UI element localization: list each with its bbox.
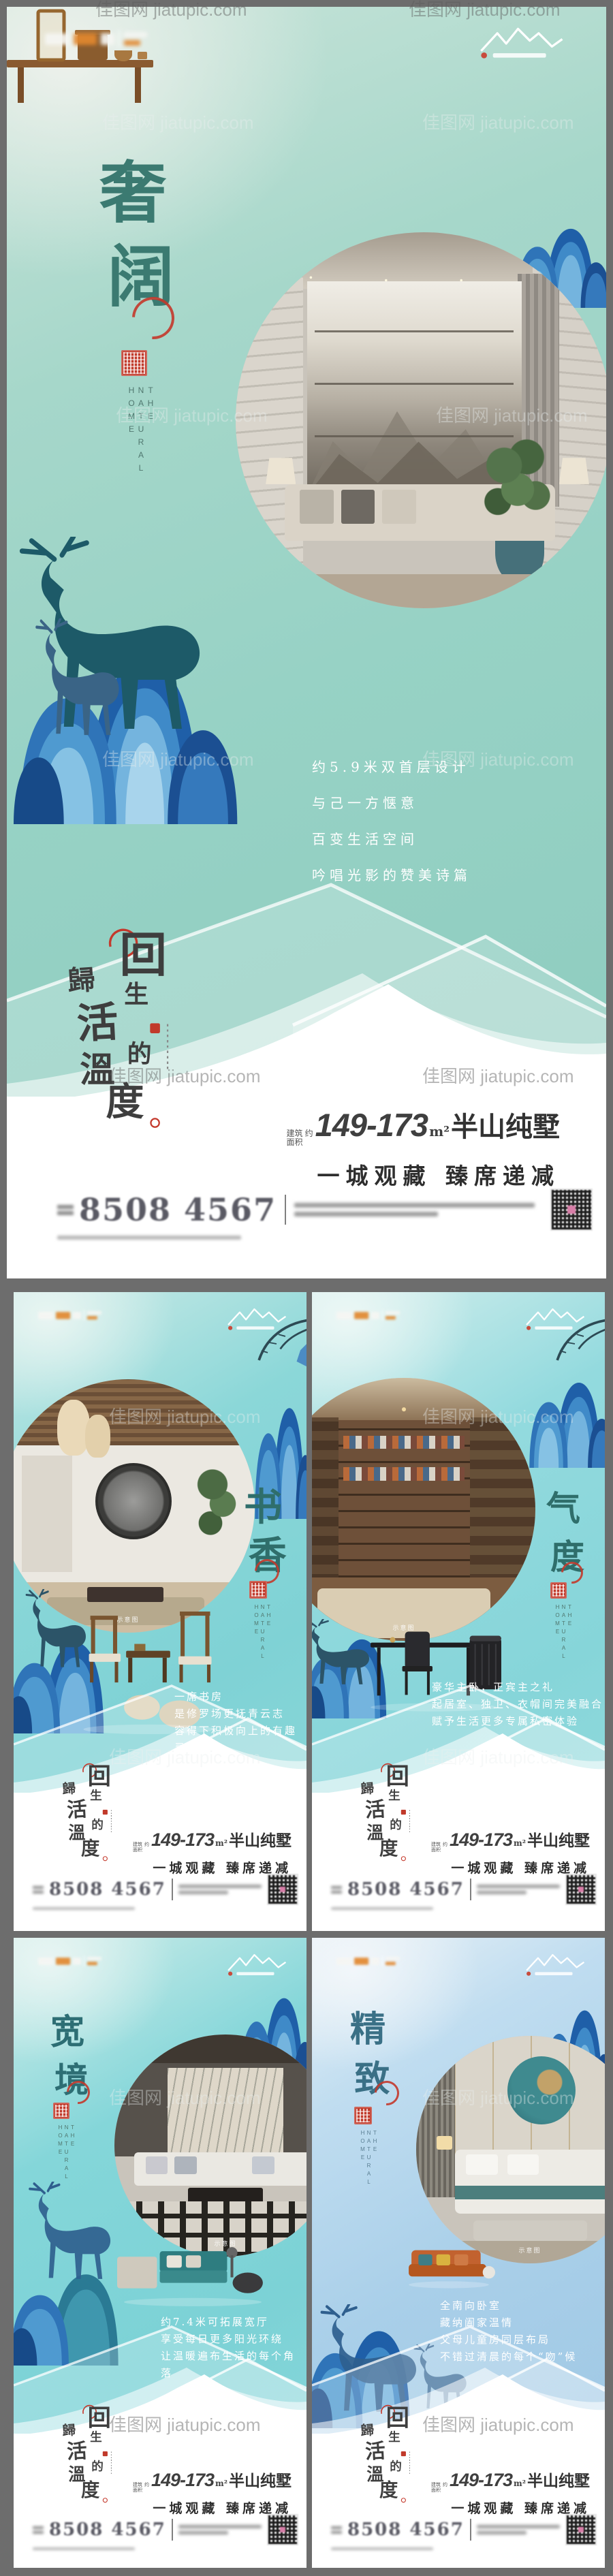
logo-block	[371, 1958, 379, 1965]
paragraph-line: 让温暖遍布生活的每个角落	[161, 2348, 306, 2382]
logo-divider	[84, 1310, 84, 1321]
area-suffix: 半山纯墅	[229, 2468, 292, 2491]
photo-cushion	[174, 2156, 197, 2174]
slogan-char: 度	[106, 1083, 144, 1121]
address-blurred	[477, 1885, 565, 1894]
photo-ceiling	[114, 2035, 306, 2063]
slogan-char: 活	[66, 2440, 87, 2462]
paragraph-line: 藏纳阖家温情	[440, 2314, 577, 2331]
english-subtitle: THE NATURAL HOME	[57, 2124, 76, 2201]
slogan-char: 度	[379, 2481, 398, 2500]
photo-louver-panel	[416, 2047, 455, 2197]
logo-block	[124, 32, 147, 37]
qr-code	[267, 1874, 298, 1905]
area-approx: 约	[443, 1841, 447, 1848]
slogan-char: 歸	[360, 1782, 375, 1796]
title-char: 精	[350, 2010, 390, 2049]
photo-caption: 示意图	[518, 2246, 541, 2255]
phone-number: 8508 4567	[347, 1879, 465, 1900]
photo-panel	[22, 1456, 72, 1572]
poster-qidu: 示意图 气 度 THE NATURAL HOME	[312, 1292, 605, 1931]
tiny-vertical-text-blurred	[111, 1809, 112, 1832]
divider	[172, 1879, 173, 1900]
paragraph-line: 不错过清晨的每个“吻”候	[440, 2349, 577, 2366]
poster-series-canvas: 奢 阔 THE NATURAL HOME	[0, 0, 613, 2576]
logo-block	[386, 1957, 400, 1960]
photo-round-art-disc	[507, 2056, 576, 2124]
logo-divider	[382, 1310, 383, 1321]
logo-divider	[382, 1955, 383, 1966]
qr-code	[565, 1874, 597, 1905]
mountain-ridge-icon	[478, 26, 567, 60]
area-suffix: 半山纯墅	[451, 1105, 560, 1144]
tiny-vertical-text-blurred	[167, 1022, 168, 1069]
orange-sofa-decoration	[406, 2242, 496, 2291]
poster-shekuo: 奢 阔 THE NATURAL HOME	[7, 7, 606, 1278]
slogan-char: 歸	[360, 2423, 375, 2438]
area-prefix: 面积	[287, 1138, 303, 1147]
mini-seal	[103, 1810, 108, 1815]
slogan-char: 歸	[67, 966, 96, 995]
poster-title-vertical: 气 度	[546, 1490, 584, 1575]
phone-label-blurred	[331, 2526, 342, 2534]
slogan-calligraphy: 回 歸 生 活 的 溫 度	[46, 932, 199, 1122]
slogan-char: 活	[364, 1799, 386, 1820]
slogan-char: 的	[91, 2460, 104, 2472]
paragraph-line: 约5.9米双首层设计	[312, 749, 471, 785]
qr-code	[267, 2514, 298, 2545]
logo-block	[101, 33, 114, 45]
logo-block	[124, 40, 140, 46]
paragraph-line: 与己一方惬意	[312, 785, 471, 821]
phone-label-blurred	[57, 1205, 74, 1215]
paragraph-line: 一席书房	[174, 1688, 306, 1706]
poster-title-vertical: 奢 阔	[99, 157, 174, 314]
qr-code	[550, 1189, 593, 1231]
photo-bed-runner	[455, 2186, 605, 2199]
disclaimer-blurred	[331, 2547, 433, 2550]
slogan-char: 回	[88, 2406, 111, 2430]
tea-console-decoration	[7, 7, 153, 106]
photo-shelf	[315, 330, 514, 332]
project-mountain-logo	[226, 1307, 289, 1331]
english-subtitle: THE NATURAL HOME	[253, 1604, 272, 1680]
disclaimer-blurred	[33, 1907, 135, 1910]
area-prefix: 建筑	[431, 2483, 441, 2488]
logo-block	[354, 1958, 368, 1965]
deer-silhouette-small	[34, 618, 140, 742]
contact-bar: 8508 4567	[331, 1874, 597, 1905]
phone-number: 8508 4567	[49, 2519, 166, 2540]
red-dot-decoration	[401, 2498, 406, 2502]
area-info: 建筑面积 约 149-173 m² 半山纯墅 一城观藏 臻席递减	[431, 1827, 590, 1876]
area-approx: 约	[144, 2481, 149, 2488]
tiny-vertical-text-blurred	[409, 2451, 410, 2474]
slogan-char: 生	[388, 1789, 400, 1802]
poster-paragraph: 全南向卧室 藏纳阖家温情 父母儿童房同层布局 不错过清晨的每个“吻”候	[440, 2297, 577, 2366]
area-number: 149-173	[151, 1829, 214, 1851]
red-seal-stamp	[550, 1582, 567, 1599]
slogan-char: 生	[90, 1789, 102, 1802]
poster-paragraph: 豪华主卧，正宾主之礼 起居室、独卫、衣帽间完美融合 赋予生活更多专属私密体验	[432, 1679, 603, 1730]
photo-cushion	[252, 2156, 274, 2174]
area-prefix: 面积	[431, 2488, 441, 2494]
area-unit: m²	[514, 1838, 526, 1848]
photo-wall-left	[236, 266, 303, 608]
english-subtitle: THE NATURAL HOME	[554, 1604, 573, 1680]
area-prefix: 面积	[133, 1848, 142, 1853]
red-dot-decoration	[150, 1118, 160, 1128]
photo-clothes-row	[343, 1436, 465, 1449]
address-blurred	[477, 2525, 565, 2534]
address-blurred	[178, 2525, 267, 2534]
slogan-char: 的	[390, 1819, 402, 1831]
area-prefix: 建筑	[431, 1842, 441, 1848]
phone-number: 8508 4567	[79, 1191, 277, 1228]
area-info: 建筑面积 约 149-173 m² 半山纯墅 一城观藏 臻席递减	[133, 1827, 292, 1876]
mountain-ridge-icon	[524, 1307, 587, 1331]
red-dot-decoration	[103, 2498, 108, 2502]
tiny-vertical-text-blurred	[111, 2451, 112, 2474]
slogan-calligraphy: 回 歸 生 活 的 溫 度	[52, 2406, 127, 2500]
project-mountain-logo	[478, 26, 567, 60]
paragraph-line: 约7.4米可拓展宽厅	[161, 2314, 306, 2331]
disclaimer-blurred	[33, 2547, 135, 2550]
logo-block	[74, 33, 97, 45]
developer-logo-blurred	[38, 1310, 101, 1321]
photo-cushion	[146, 2156, 168, 2174]
paragraph-line: 容得下积极向上的有趣灵魂	[174, 1723, 306, 1757]
logo-block	[354, 1312, 368, 1319]
logo-block	[73, 1958, 81, 1965]
english-subtitle: THE NATURAL HOME	[360, 2130, 378, 2206]
walk-in-closet-photo-circle: 示意图	[312, 1378, 535, 1641]
logo-divider	[119, 30, 120, 48]
slogan-char: 活	[66, 1799, 87, 1820]
slogan-char: 的	[127, 1041, 152, 1066]
logo-block	[87, 1311, 101, 1315]
poster-shuxiang: 示意图 书 香 THE NATURAL HOME	[14, 1292, 306, 1931]
area-prefix: 建筑	[133, 2483, 142, 2488]
logo-block	[336, 1312, 351, 1319]
logo-block	[386, 1316, 396, 1319]
slogan-char: 度	[81, 2481, 99, 2500]
slogan-char: 生	[388, 2431, 400, 2443]
area-prefix: 面积	[431, 1848, 441, 1853]
area-approx: 约	[144, 1841, 149, 1848]
red-seal-stamp	[354, 2107, 372, 2124]
logo-block	[45, 33, 69, 45]
logo-block	[386, 1311, 400, 1315]
area-info: 建筑面积 约 149-173 m² 半山纯墅 一城观藏 臻席递减	[431, 2468, 590, 2517]
red-dot-decoration	[401, 1856, 406, 1861]
paragraph-line: 百变生活空间	[312, 821, 471, 858]
slogan-char: 的	[390, 2460, 402, 2472]
photo-cushion	[341, 490, 375, 524]
red-seal-stamp	[121, 350, 147, 376]
poster-paragraph: 约5.9米双首层设计 与己一方惬意 百变生活空间 吟唱光影的赞美诗篇	[312, 749, 471, 894]
teal-sofa-decoration	[117, 2243, 268, 2308]
phone-label-blurred	[33, 2526, 44, 2534]
area-info: 建筑面积 约 149-173 m² 半山纯墅 一城观藏 臻席递减	[287, 1105, 560, 1191]
photo-round-mirror	[95, 1463, 172, 1539]
phone-number: 8508 4567	[347, 2519, 465, 2540]
title-char: 奢	[99, 157, 174, 230]
title-char: 宽	[50, 2013, 89, 2050]
area-number: 149-173	[450, 2470, 512, 2491]
logo-block	[87, 1957, 101, 1960]
area-suffix: 半山纯墅	[527, 1827, 590, 1851]
bedroom-photo-circle: 示意图	[416, 2036, 605, 2263]
slogan-char: 回	[386, 2406, 409, 2430]
slogan-char: 回	[120, 932, 167, 979]
living-room-photo-circle	[236, 232, 606, 608]
slogan-calligraphy: 回 歸 生 活 的 溫 度	[52, 1765, 127, 1859]
slogan-char: 生	[124, 982, 148, 1007]
area-unit: m²	[215, 1838, 227, 1848]
photo-pillow	[507, 2154, 539, 2175]
mountain-ridge-icon	[226, 1307, 289, 1331]
photo-cushion	[382, 490, 416, 524]
title-char: 气	[546, 1490, 584, 1527]
photo-bamboo-mural	[168, 2068, 283, 2156]
photo-plant	[473, 435, 563, 556]
slogan-char: 度	[81, 1839, 99, 1858]
photo-clothes-row	[343, 1467, 465, 1480]
photo-lamp	[266, 458, 296, 484]
slogan-char: 歸	[62, 1782, 76, 1796]
project-mountain-logo	[226, 1953, 289, 1977]
paragraph-line: 是修罗场更抚青云志	[174, 1706, 306, 1723]
logo-block	[336, 1958, 351, 1965]
project-mountain-logo	[524, 1953, 587, 1977]
contact-bar: 8508 4567	[331, 2514, 597, 2545]
poster-kuanjing: 宽 境 THE NATURAL HOME 示意图	[14, 1938, 306, 2568]
logo-block	[38, 1958, 53, 1965]
logo-block	[87, 1962, 97, 1965]
logo-block	[386, 1962, 396, 1965]
photo-shelf	[315, 383, 514, 385]
photo-lamp	[559, 458, 589, 484]
slogan-char: 回	[88, 1765, 111, 1788]
paragraph-line: 父母儿童房同层布局	[440, 2331, 577, 2349]
photo-lamp	[437, 2136, 452, 2150]
photo-cushion	[300, 490, 334, 524]
slogan-char: 歸	[62, 2423, 76, 2438]
title-char: 书	[244, 1487, 287, 1529]
tiny-vertical-text-blurred	[409, 1809, 410, 1832]
paragraph-line: 全南向卧室	[440, 2297, 577, 2314]
area-suffix: 半山纯墅	[527, 2468, 590, 2491]
area-number: 149-173	[151, 2470, 214, 2491]
area-approx: 约	[305, 1127, 313, 1139]
slogan-calligraphy: 回 歸 生 活 的 溫 度	[350, 1765, 425, 1859]
tea-console-drawing	[7, 7, 153, 106]
divider	[470, 2519, 471, 2541]
logo-block	[56, 1958, 70, 1965]
area-unit: m²	[429, 1123, 450, 1140]
mini-seal	[401, 1810, 406, 1815]
mountain-ridge-icon	[226, 1953, 289, 1977]
blue-hills-decoration	[527, 1371, 605, 1468]
mini-seal	[401, 2451, 406, 2456]
qr-code	[565, 2514, 597, 2545]
photo-bench	[473, 2220, 587, 2241]
project-mountain-logo	[524, 1307, 587, 1331]
tagline: 一城观藏 臻席递减	[287, 1158, 560, 1191]
red-dot-decoration	[103, 1856, 108, 1861]
logo-block	[38, 1312, 53, 1319]
poster-paragraph: 一席书房 是修罗场更抚青云志 容得下积极向上的有趣灵魂	[174, 1688, 306, 1757]
area-number: 149-173	[450, 1829, 512, 1851]
disclaimer-blurred	[331, 1907, 433, 1910]
mountain-ridge-icon	[524, 1953, 587, 1977]
photo-wood-ceiling	[14, 1379, 255, 1445]
phone-label-blurred	[331, 1886, 342, 1894]
developer-logo-blurred	[45, 30, 147, 48]
photo-ceiling	[312, 1378, 535, 1423]
paragraph-line: 起居室、独卫、衣帽间完美融合	[432, 1696, 603, 1713]
address-blurred	[294, 1203, 550, 1216]
address-blurred	[178, 1885, 267, 1894]
slogan-char: 活	[364, 2440, 386, 2462]
area-approx: 约	[443, 2481, 447, 2488]
logo-divider	[84, 1955, 84, 1966]
developer-logo-blurred	[336, 1955, 400, 1966]
disclaimer-blurred	[57, 1236, 241, 1240]
photo-floor	[236, 574, 606, 608]
area-info: 建筑面积 约 149-173 m² 半山纯墅 一城观藏 臻席递减	[133, 2468, 292, 2517]
paragraph-line: 豪华主卧，正宾主之礼	[432, 1679, 603, 1696]
slogan-calligraphy: 回 歸 生 活 的 溫 度	[350, 2406, 425, 2500]
developer-logo-blurred	[336, 1310, 400, 1321]
logo-block	[87, 1316, 97, 1319]
area-unit: m²	[514, 2479, 526, 2488]
logo-block	[371, 1312, 379, 1319]
mini-seal	[103, 2451, 108, 2456]
slogan-char: 活	[76, 1001, 119, 1044]
mini-seal	[150, 1023, 160, 1033]
paragraph-line: 吟唱光影的赞美诗篇	[312, 858, 471, 894]
logo-block	[56, 1312, 70, 1319]
phone-label-blurred	[33, 1886, 44, 1894]
photo-pillow	[466, 2154, 498, 2175]
divider	[470, 1879, 471, 1900]
logo-block	[73, 1312, 81, 1319]
poster-paragraph: 约7.4米可拓展宽厅 享受每日更多阳光环绕 让温暖遍布生活的每个角落	[161, 2314, 306, 2382]
divider	[285, 1195, 286, 1225]
phone-number: 8508 4567	[49, 1879, 166, 1900]
slogan-char: 回	[386, 1765, 409, 1788]
red-seal-stamp	[249, 1581, 267, 1599]
contact-bar: 8508 4567	[33, 1874, 298, 1905]
photo-rattan-lamp	[85, 1415, 110, 1458]
english-subtitle: THE NATURAL HOME	[127, 386, 155, 508]
living-room-photo-circle: 示意图	[114, 2035, 306, 2257]
area-unit: m²	[215, 2479, 227, 2488]
paragraph-line: 享受每日更多阳光环绕	[161, 2331, 306, 2348]
contact-bar: 8508 4567	[57, 1188, 593, 1231]
mottled-deer-silhouette	[27, 2182, 131, 2285]
red-seal-stamp	[53, 2103, 69, 2119]
photo-plant	[196, 1465, 237, 1561]
paragraph-line: 赋予生活更多专属私密体验	[432, 1713, 603, 1730]
area-suffix: 半山纯墅	[229, 1827, 292, 1851]
contact-bar: 8508 4567	[33, 2514, 298, 2545]
area-prefix: 面积	[133, 2488, 142, 2494]
slogan-char: 度	[379, 1839, 398, 1858]
poster-jingzhi: 精 致 THE NATURAL HOME 示意图	[312, 1938, 605, 2568]
slogan-char: 生	[90, 2431, 102, 2443]
area-prefix: 建筑	[133, 1842, 142, 1848]
slogan-char: 的	[91, 1819, 104, 1831]
developer-logo-blurred	[38, 1955, 101, 1966]
area-number: 149-173	[315, 1106, 428, 1144]
divider	[172, 2519, 173, 2541]
